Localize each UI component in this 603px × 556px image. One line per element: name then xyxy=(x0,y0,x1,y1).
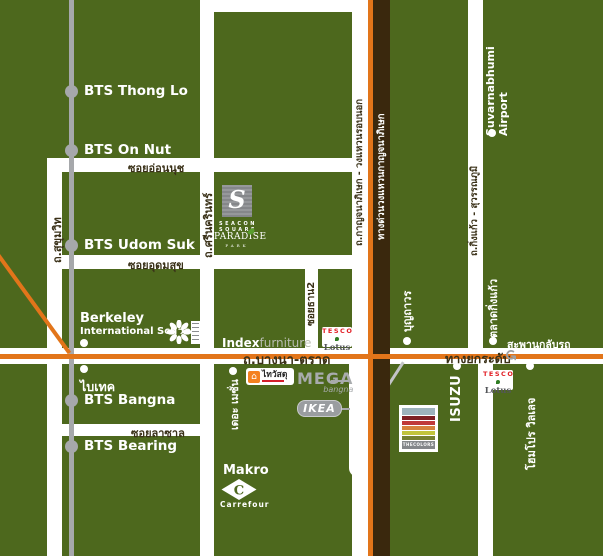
index-furniture-logo: Indexfurniture xyxy=(222,336,311,350)
bts-station-onnut-dot xyxy=(65,144,78,157)
carrefour-wordmark: Carrefour xyxy=(220,500,258,509)
suvarnabhumi-line1: Suvarnabhumi xyxy=(484,46,497,136)
bts-station-bangna-dot xyxy=(65,394,78,407)
bts-station-thonglo-dot xyxy=(65,85,78,98)
poi-label-berkeley-line1: Berkeley xyxy=(80,311,144,326)
berkeley-flower-icon xyxy=(167,320,191,344)
road-label-srinakarin: ถ.ศรีนครินทร์ xyxy=(200,184,215,258)
homepro-dot xyxy=(526,362,534,370)
seacon-s: S xyxy=(228,185,245,214)
colors-stripe-maroon xyxy=(402,416,435,420)
thaiwatsadu-red-bar xyxy=(262,380,284,382)
seacon-square-logo: S xyxy=(222,185,252,217)
poi-label-homepro-village: โฮมโปร วิลเลจ xyxy=(523,388,538,470)
berkeley-tag-icon xyxy=(191,321,200,344)
carrefour-logo: C Carrefour xyxy=(220,479,258,509)
poi-label-the-maison: เดอะ เมซั่น xyxy=(226,374,241,430)
thaiwatsadu-wordmark: ไทวัสดุ xyxy=(262,371,287,379)
poi-label-isuzu: ISUZU xyxy=(449,370,465,422)
paradise-park-logo: PARADISE PARK xyxy=(214,232,260,248)
road-label-sukhumvit: ถ.สุขุมวิท xyxy=(49,203,64,263)
colors-stripe-olive xyxy=(402,436,435,440)
lotus-leaf-icon xyxy=(496,380,500,384)
svg-text:C: C xyxy=(234,483,244,498)
lotus-leaf-icon xyxy=(335,337,339,341)
road-label-udomsuk: ซอยอุดมสุข xyxy=(128,256,184,274)
poi-label-bitec: ไบเทค xyxy=(80,377,115,397)
tesco-lotus-logo-kingkaew: TESCO Lotus xyxy=(483,370,513,390)
road-top-horizontal xyxy=(213,0,353,12)
road-label-ring-road: ถ.กาญจนาภิเษก - วงแหวนรอบนอก xyxy=(352,86,368,246)
road-label-lasalle: ซอยลาซาล xyxy=(131,424,185,442)
road-label-kingkaew: ถ.กิ่งแก้ว - สุวรรณภูมิ xyxy=(467,154,483,256)
bts-station-udomsuk-label: BTS Udom Suk xyxy=(84,237,195,253)
suvarnabhumi-dot xyxy=(488,129,496,137)
ikea-logo: IKEA xyxy=(297,400,342,417)
mega-wordmark: MEGA xyxy=(297,371,353,386)
expressway-overpass xyxy=(373,0,390,556)
colors-stripe-lime xyxy=(402,431,435,435)
index-light: furniture xyxy=(259,336,311,350)
road-label-soi-than2: ซอยธาน2 xyxy=(304,276,319,326)
poi-label-boonthavorn: บุญถาวร xyxy=(399,290,414,332)
colors-stripe-red xyxy=(402,421,435,425)
colors-stripe-orange xyxy=(402,426,435,430)
road-srinakarin xyxy=(200,0,214,556)
poi-label-talad-kingkaew: ตลาดกิ่งแก้ว xyxy=(485,270,500,338)
road-label-expressway: ทางด่วนวงแหวนกาญจนาภิเษก xyxy=(374,90,390,240)
poi-label-makro: Makro xyxy=(223,463,269,478)
the-colors-logo: THECOLORS xyxy=(399,405,438,452)
bangna-area-map: BTS Thong Lo BTS On Nut BTS Udom Suk BTS… xyxy=(0,0,603,556)
maison-dot xyxy=(229,367,237,375)
u-turn-arrow-icon: ↺ xyxy=(501,349,519,362)
bts-line xyxy=(69,0,74,556)
bitec-dot xyxy=(80,365,88,373)
poi-label-suvarnabhumi: Suvarnabhumi Airport xyxy=(484,44,511,136)
thaiwatsadu-house-icon: ⌂ xyxy=(248,371,260,383)
tesco-lotus-logo-soi-than: TESCO Lotus xyxy=(322,327,352,347)
bts-station-thonglo-label: BTS Thong Lo xyxy=(84,83,188,99)
talad-kingkaew-dot xyxy=(489,337,497,345)
paradise-line1: PARADISE xyxy=(214,232,260,242)
tesco-wordmark: TESCO xyxy=(483,371,513,378)
suvarnabhumi-line2: Airport xyxy=(497,92,510,136)
carrefour-diamond-icon: C xyxy=(221,479,257,500)
colors-stripe-blue xyxy=(402,408,435,415)
ikea-connector-line xyxy=(341,408,350,410)
bts-station-bearing-dot xyxy=(65,440,78,453)
index-bold: Index xyxy=(222,336,259,350)
thaiwatsadu-logo: ⌂ ไทวัสดุ xyxy=(246,368,294,385)
bts-station-onnut-label: BTS On Nut xyxy=(84,142,171,158)
the-colors-wordmark: THECOLORS xyxy=(402,441,435,449)
route-line-ring-stripe xyxy=(368,0,373,556)
paradise-line2: PARK xyxy=(214,243,260,248)
road-label-onnut: ซอยอ่อนนุช xyxy=(128,159,184,177)
berkeley-dot xyxy=(80,339,88,347)
tesco-wordmark: TESCO xyxy=(322,328,352,335)
road-label-bangna-trad: ถ.บางนา-ตราด xyxy=(243,349,330,370)
lotus-wordmark: Lotus xyxy=(483,378,513,396)
mega-bangna-logo: MEGA bangna xyxy=(297,371,353,394)
boonthavorn-dot xyxy=(403,337,411,345)
